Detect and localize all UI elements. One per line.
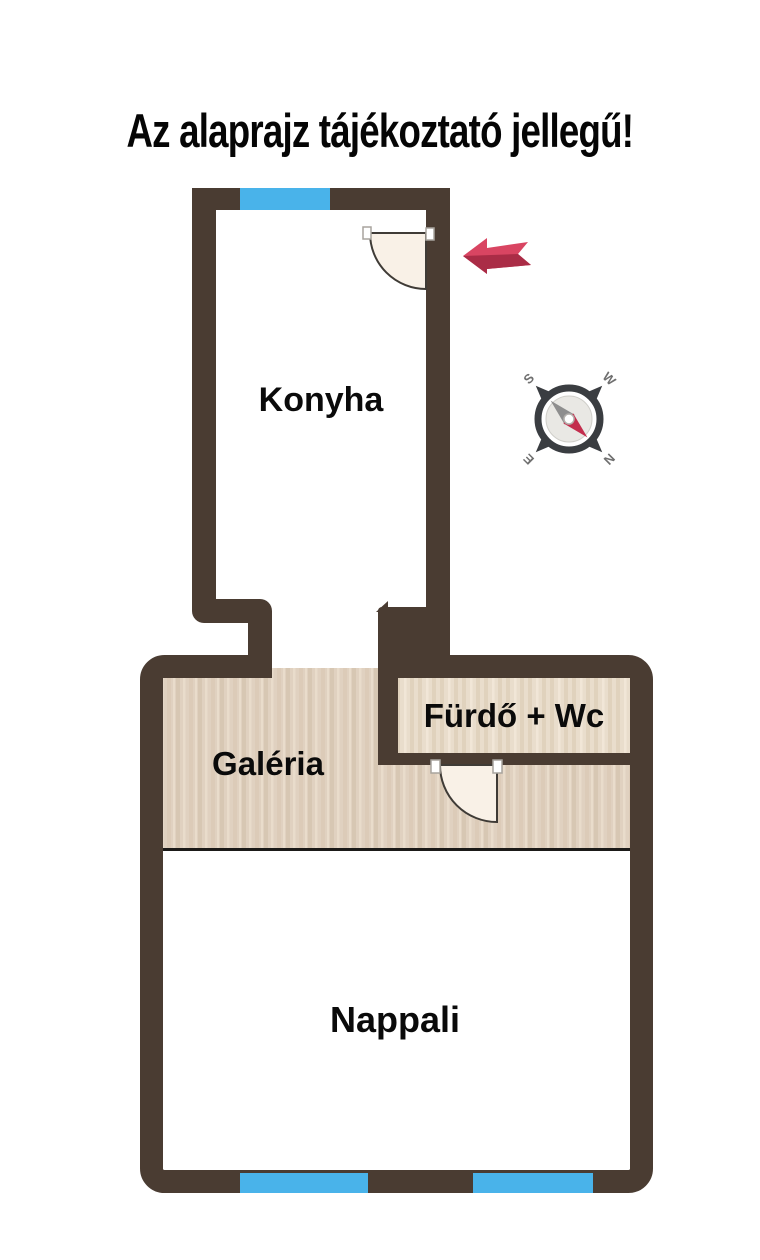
living-room-window-right bbox=[473, 1173, 593, 1193]
kitchen-door-jamb-left bbox=[363, 227, 371, 239]
floorplan-page: Az alaprajz tájékoztató jellegű! bbox=[0, 0, 760, 1260]
compass-icon: S W N E bbox=[478, 328, 660, 510]
kitchen-gallery-passage bbox=[272, 590, 378, 670]
kitchen-left-wall bbox=[204, 188, 260, 668]
bathroom-door-jamb-left bbox=[431, 760, 440, 773]
living-room-label: Nappali bbox=[330, 999, 460, 1040]
gallery-label: Galéria bbox=[212, 745, 325, 782]
bathroom-bottom-wall bbox=[378, 753, 653, 765]
bathroom-left-wall bbox=[378, 655, 398, 765]
kitchen-door-jamb-right bbox=[426, 228, 434, 240]
kitchen-window bbox=[240, 188, 330, 210]
kitchen-label: Konyha bbox=[259, 381, 385, 419]
kitchen-right-wall bbox=[426, 188, 450, 672]
entrance-arrow-shade bbox=[463, 254, 531, 274]
compass-letter-s: S bbox=[520, 370, 537, 387]
compass-letter-n: N bbox=[601, 451, 618, 468]
kitchen-door-swing bbox=[370, 233, 426, 289]
entrance-arrow-icon bbox=[463, 238, 531, 274]
bathroom-door-jamb-right bbox=[493, 760, 502, 773]
passage-wood-strip bbox=[272, 668, 378, 680]
living-room-window-left bbox=[240, 1173, 368, 1193]
floorplan-svg: Konyha Galéria Fürdő + Wc Nappali S W N … bbox=[0, 0, 760, 1260]
compass-letter-e: E bbox=[520, 451, 537, 468]
bathroom-label: Fürdő + Wc bbox=[424, 697, 605, 734]
gallery-living-divider-line bbox=[163, 848, 630, 851]
compass-letter-w: W bbox=[600, 369, 620, 389]
